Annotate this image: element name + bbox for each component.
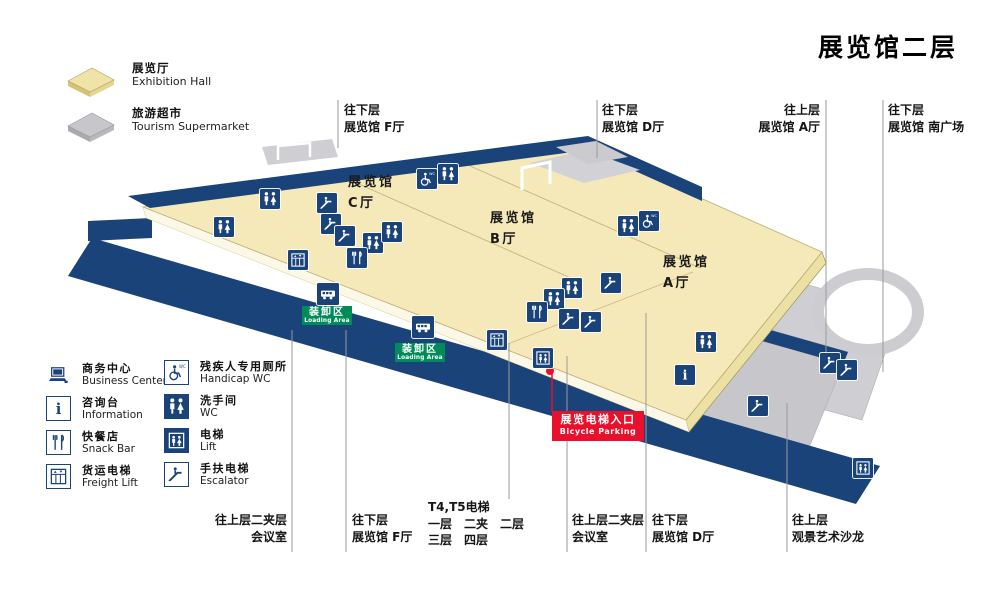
callout-label: 往上层观景艺术沙龙 [792, 512, 864, 545]
escalator-icon [748, 396, 768, 416]
loading-area-en: Loading Area [302, 318, 352, 324]
yellow-tile-swatch [62, 56, 120, 100]
legend-item-snack: 快餐店 Snack Bar [46, 430, 167, 456]
svg-text:WC: WC [651, 214, 657, 218]
callout-label: 往下层展览馆 F厅 [352, 512, 412, 545]
escalator-icon [559, 309, 579, 329]
callout-line: 一层 二夹 二层 [428, 516, 524, 533]
hall-name: 展览馆 [490, 208, 537, 229]
callout-line: 展览馆 D厅 [652, 529, 714, 546]
callout-line: 展览馆 F厅 [344, 119, 404, 136]
hall-letter: A厅 [663, 273, 710, 294]
legend-item-text: 咨询台 Information [82, 396, 143, 422]
entrance-tag-zh: 展览电梯入口 [552, 413, 644, 427]
legend-item-info: i咨询台 Information [46, 396, 167, 422]
legend-item-en: Snack Bar [82, 443, 135, 456]
wc-icon [164, 394, 189, 419]
computer-icon [46, 362, 71, 387]
wc-icon [438, 164, 458, 184]
callout-line: 会议室 [572, 529, 644, 546]
legend-column-right: WC 残疾人专用厕所 Handicap WC 洗手间 WC 电梯 Lift 手扶… [164, 360, 288, 496]
escalator-icon [601, 273, 621, 293]
legend-item-text: 电梯 Lift [200, 428, 225, 454]
legend-tourism-supermarket: 旅游超市 Tourism Supermarket [62, 101, 249, 145]
snack-bar-icon [46, 430, 71, 455]
escalator-icon [837, 360, 857, 380]
circle-ramp-hole [824, 280, 912, 344]
legend-item-zh: 咨询台 [82, 396, 143, 409]
callout-line: 往上层 [792, 512, 864, 529]
callout-line: 往下层 [888, 102, 964, 119]
callout-line: 展览馆 南广场 [888, 119, 964, 136]
hall-label-C厅: 展览馆 C厅 [348, 172, 395, 214]
loading-area-tag: 装卸区 Loading Area [395, 343, 445, 362]
legend-item-lift: 电梯 Lift [164, 428, 288, 454]
callout-line: 往下层 [652, 512, 714, 529]
legend-item-wc: 洗手间 WC [164, 394, 288, 420]
callout-line: 三层 四层 [428, 532, 524, 549]
loading-area-zh: 装卸区 [395, 344, 445, 355]
legend-item-text: 快餐店 Snack Bar [82, 430, 135, 456]
loading-area-zh: 装卸区 [302, 307, 352, 318]
legend-item-zh: 残疾人专用厕所 [200, 360, 288, 373]
hall-label-A厅: 展览馆 A厅 [663, 252, 710, 294]
handicap-wc-icon: WC [164, 360, 189, 385]
callout-label: 往下层展览馆 D厅 [652, 512, 714, 545]
callout-line: 展览馆 D厅 [602, 119, 664, 136]
legend-item-en: Lift [200, 441, 225, 454]
legend-item-hcwc: WC 残疾人专用厕所 Handicap WC [164, 360, 288, 386]
callout-line: 会议室 [215, 529, 287, 546]
callout-line: T4,T5电梯 [428, 499, 524, 516]
lift-icon [164, 428, 189, 453]
truck-icon [317, 283, 339, 305]
callout-line: 观景艺术沙龙 [792, 529, 864, 546]
page-title: 展览馆二层 [818, 28, 958, 64]
legend-exhibition-hall-en: Exhibition Hall [132, 75, 211, 89]
handicap-wc-icon: WC [417, 169, 437, 189]
legend-item-text: 残疾人专用厕所 Handicap WC [200, 360, 288, 386]
loading-area-en: Loading Area [395, 355, 445, 361]
legend-item-esc: 手扶电梯 Escalator [164, 462, 288, 488]
legend-item-en: Freight Lift [82, 477, 138, 490]
wc-icon [260, 189, 280, 209]
legend-item-en: Handicap WC [200, 373, 288, 386]
legend-column-left: 商务中心 Business Centeri咨询台 Information 快餐店… [46, 362, 167, 498]
handicap-wc-icon: WC [639, 211, 659, 231]
legend-item-en: Escalator [200, 475, 250, 488]
legend-tourism-supermarket-zh: 旅游超市 [132, 106, 249, 120]
wc-icon [562, 278, 582, 298]
left-walkway-stub [88, 218, 152, 241]
legend-exhibition-hall-zh: 展览厅 [132, 61, 211, 75]
wc-icon [544, 289, 564, 309]
legend-item-zh: 洗手间 [200, 394, 238, 407]
svg-text:i: i [683, 368, 688, 383]
svg-text:WC: WC [429, 172, 435, 176]
callout-label: 往下层展览馆 D厅 [602, 102, 664, 135]
legend-exhibition-hall: 展览厅 Exhibition Hall [62, 56, 211, 100]
callout-line: 展览馆 A厅 [759, 119, 820, 136]
snack-bar-icon [527, 302, 547, 322]
loading-area-tag: 装卸区 Loading Area [302, 306, 352, 325]
callout-line: 往上层 [759, 102, 820, 119]
legend-item-zh: 电梯 [200, 428, 225, 441]
legend-item-zh: 快餐店 [82, 430, 135, 443]
legend-item-en: WC [200, 407, 238, 420]
exhibition-lift-entrance-tag: 展览电梯入口 Bicycle Parking [552, 411, 644, 441]
lift-icon [853, 458, 873, 478]
wc-icon [214, 217, 234, 237]
svg-text:WC: WC [179, 364, 186, 369]
legend-item-computer: 商务中心 Business Center [46, 362, 167, 388]
floor-map-canvas: 展览馆二层 展览厅 Exhibition Hall 旅游超市 Tourism S… [0, 0, 1008, 600]
legend-item-text: 手扶电梯 Escalator [200, 462, 250, 488]
callout-line: 往上层二夹层 [572, 512, 644, 529]
information-icon: i [46, 396, 71, 421]
wc-icon [696, 332, 716, 352]
hall-label-B厅: 展览馆 B厅 [490, 208, 537, 250]
legend-item-text: 洗手间 WC [200, 394, 238, 420]
callout-label: T4,T5电梯一层 二夹 二层三层 四层 [428, 499, 524, 549]
callout-line: 展览馆 F厅 [352, 529, 412, 546]
hall-name: 展览馆 [348, 172, 395, 193]
escalator-icon [335, 226, 355, 246]
callout-line: 往上层二夹层 [215, 512, 287, 529]
freight-lift-icon [487, 330, 507, 350]
svg-text:i: i [56, 401, 62, 418]
legend-item-zh: 商务中心 [82, 362, 167, 375]
callout-line: 往下层 [602, 102, 664, 119]
entrance-dot [546, 367, 554, 375]
gray-tile-swatch [62, 101, 120, 145]
hall-name: 展览馆 [663, 252, 710, 273]
legend-item-en: Information [82, 409, 143, 422]
escalator-icon [164, 462, 189, 487]
lift-icon [533, 348, 553, 368]
legend-tourism-supermarket-en: Tourism Supermarket [132, 120, 249, 134]
legend-item-zh: 手扶电梯 [200, 462, 250, 475]
callout-label: 往上层展览馆 A厅 [759, 102, 820, 135]
callout-label: 往上层二夹层会议室 [215, 512, 287, 545]
entrance-tag-en: Bicycle Parking [552, 427, 644, 437]
freight-lift-icon [288, 250, 308, 270]
legend-item-freight: 货运电梯 Freight Lift [46, 464, 167, 490]
callout-line: 往下层 [344, 102, 404, 119]
legend-item-zh: 货运电梯 [82, 464, 138, 477]
callout-label: 往下层展览馆 南广场 [888, 102, 964, 135]
information-icon: i [675, 365, 695, 385]
callout-line: 往下层 [352, 512, 412, 529]
escalator-icon [317, 193, 337, 213]
wc-icon [618, 216, 638, 236]
truck-icon [412, 316, 434, 338]
wc-icon [382, 222, 402, 242]
callout-label: 往上层二夹层会议室 [572, 512, 644, 545]
escalator-icon [581, 312, 601, 332]
legend-item-text: 商务中心 Business Center [82, 362, 167, 388]
hall-letter: C厅 [348, 193, 395, 214]
callout-label: 往下层展览馆 F厅 [344, 102, 404, 135]
snack-bar-icon [347, 248, 367, 268]
legend-item-en: Business Center [82, 375, 167, 388]
freight-lift-icon [46, 464, 71, 489]
hall-letter: B厅 [490, 229, 537, 250]
legend-item-text: 货运电梯 Freight Lift [82, 464, 138, 490]
